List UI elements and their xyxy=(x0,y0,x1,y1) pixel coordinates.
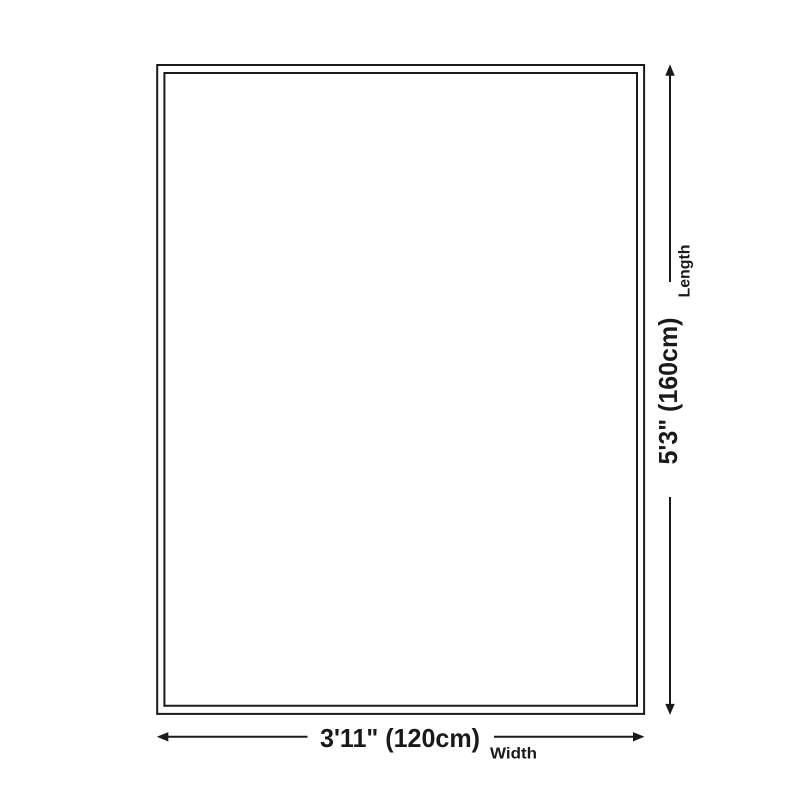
svg-text:Width: Width xyxy=(490,746,537,763)
svg-text:3'11" (120cm): 3'11" (120cm) xyxy=(320,723,480,753)
svg-text:5'3" (160cm): 5'3" (160cm) xyxy=(653,318,683,465)
svg-text:Length: Length xyxy=(677,245,694,298)
